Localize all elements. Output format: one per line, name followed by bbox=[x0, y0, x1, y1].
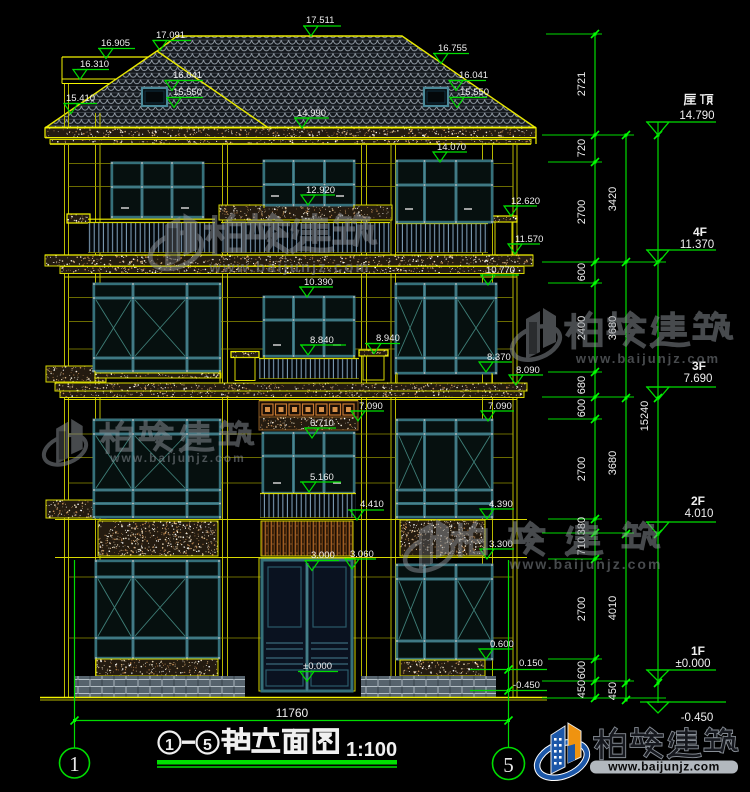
svg-text:17.091: 17.091 bbox=[156, 30, 185, 41]
svg-text:14.990: 14.990 bbox=[297, 108, 326, 119]
svg-text:11.370: 11.370 bbox=[680, 239, 714, 251]
svg-text:5: 5 bbox=[503, 753, 514, 777]
svg-text:16.310: 16.310 bbox=[80, 59, 109, 70]
svg-text:720: 720 bbox=[576, 139, 588, 157]
svg-text:3420: 3420 bbox=[607, 187, 619, 211]
svg-text:±0.000: ±0.000 bbox=[675, 658, 710, 670]
svg-text:7.090: 7.090 bbox=[488, 401, 512, 412]
svg-text:600: 600 bbox=[576, 661, 588, 679]
svg-text:7.690: 7.690 bbox=[684, 373, 713, 385]
svg-text:600: 600 bbox=[576, 263, 588, 281]
svg-text:4.390: 4.390 bbox=[489, 499, 513, 510]
svg-text:1F: 1F bbox=[691, 644, 705, 658]
svg-text:8.090: 8.090 bbox=[516, 365, 540, 376]
svg-text:16.755: 16.755 bbox=[438, 43, 467, 54]
svg-text:12.920: 12.920 bbox=[306, 185, 335, 196]
svg-text:15.550: 15.550 bbox=[460, 87, 489, 98]
svg-text:0.150: 0.150 bbox=[519, 658, 543, 669]
svg-text:15.550: 15.550 bbox=[173, 87, 202, 98]
svg-text:450: 450 bbox=[576, 680, 588, 698]
svg-text:600: 600 bbox=[576, 399, 588, 417]
svg-text:2700: 2700 bbox=[576, 597, 588, 621]
svg-text:16.905: 16.905 bbox=[101, 38, 130, 49]
svg-text:6.710: 6.710 bbox=[310, 418, 334, 429]
svg-text:2700: 2700 bbox=[576, 457, 588, 481]
svg-text:1:100: 1:100 bbox=[346, 739, 397, 761]
svg-text:14.070: 14.070 bbox=[437, 142, 466, 153]
svg-text:www.baijunjz.com: www.baijunjz.com bbox=[509, 556, 663, 572]
svg-text:8.940: 8.940 bbox=[376, 333, 400, 344]
svg-text:2721: 2721 bbox=[576, 72, 588, 96]
svg-text:-0.450: -0.450 bbox=[681, 712, 714, 724]
svg-text:4.410: 4.410 bbox=[360, 499, 384, 510]
svg-text:2700: 2700 bbox=[576, 200, 588, 224]
svg-text:680: 680 bbox=[576, 376, 588, 394]
svg-text:10.770: 10.770 bbox=[486, 265, 515, 276]
svg-text:11760: 11760 bbox=[276, 706, 309, 720]
svg-text:0.600: 0.600 bbox=[490, 639, 514, 650]
svg-text:450: 450 bbox=[607, 682, 619, 700]
svg-text:11.570: 11.570 bbox=[515, 234, 543, 245]
svg-text:4010: 4010 bbox=[607, 596, 619, 620]
svg-text:7.090: 7.090 bbox=[359, 401, 383, 412]
svg-text:4.010: 4.010 bbox=[685, 508, 714, 520]
svg-text:3.060: 3.060 bbox=[350, 549, 374, 560]
svg-text:12.620: 12.620 bbox=[511, 196, 540, 207]
svg-text:10.390: 10.390 bbox=[304, 277, 333, 288]
svg-text:16.041: 16.041 bbox=[173, 70, 202, 81]
svg-text:3.000: 3.000 bbox=[311, 550, 335, 561]
svg-text:1: 1 bbox=[69, 752, 80, 776]
svg-text:www.baijunjz.com: www.baijunjz.com bbox=[607, 760, 720, 774]
svg-text:www.baijunjz.com: www.baijunjz.com bbox=[109, 451, 246, 465]
svg-text:5.160: 5.160 bbox=[310, 472, 334, 483]
svg-text:-0.450: -0.450 bbox=[513, 680, 540, 691]
svg-text:17.511: 17.511 bbox=[306, 15, 334, 26]
svg-text:3680: 3680 bbox=[607, 451, 619, 475]
svg-text:±0.000: ±0.000 bbox=[303, 661, 332, 672]
svg-text:1: 1 bbox=[165, 737, 174, 754]
svg-text:15.410: 15.410 bbox=[66, 93, 95, 104]
svg-text:5: 5 bbox=[203, 737, 212, 754]
svg-text:8.840: 8.840 bbox=[310, 335, 334, 346]
svg-text:15240: 15240 bbox=[639, 401, 651, 432]
svg-text:4F: 4F bbox=[693, 225, 707, 239]
svg-text:2F: 2F bbox=[691, 494, 705, 508]
svg-text:www.baijunjz.com: www.baijunjz.com bbox=[575, 351, 720, 366]
svg-text:8.370: 8.370 bbox=[487, 352, 511, 363]
svg-text:14.790: 14.790 bbox=[679, 110, 714, 122]
svg-text:www.baijunjz.com: www.baijunjz.com bbox=[208, 259, 370, 276]
svg-text:16.041: 16.041 bbox=[459, 70, 488, 81]
